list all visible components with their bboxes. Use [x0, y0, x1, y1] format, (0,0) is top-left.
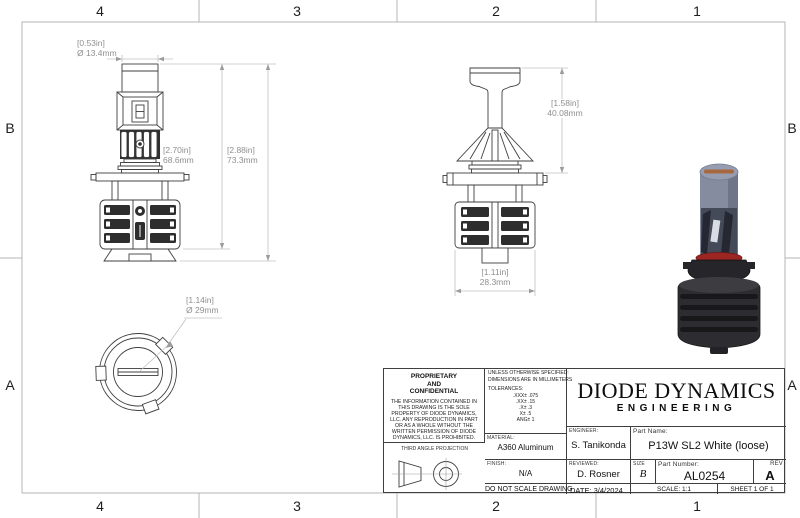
dim-base-diameter: [1.14in] Ø 29mm: [186, 296, 219, 315]
dim-tube-diameter-mm: Ø 13.4mm: [77, 49, 117, 59]
zone-label-top-4: 4: [92, 3, 108, 19]
zone-label-bottom-1: 1: [689, 498, 705, 514]
dim-upper-section-height: [1.58in] 40.08mm: [542, 99, 588, 118]
reviewed-cell: REVIEWED: D. Rosner: [567, 459, 631, 483]
engineer-value: S. Tanikonda: [567, 440, 630, 451]
zone-label-left-a: A: [2, 377, 18, 393]
zone-label-bottom-3: 3: [289, 498, 305, 514]
do-not-scale-label: DO NOT SCALE DRAWING: [485, 486, 566, 493]
spec-note-1: UNLESS OTHERWISE SPECIFIED:: [485, 369, 566, 377]
zone-label-bottom-4: 4: [92, 498, 108, 514]
material-value: A360 Aluminum: [485, 443, 566, 452]
rev-label: REV: [770, 461, 783, 467]
proprietary-title-line3: CONFIDENTIAL: [384, 388, 484, 396]
reviewed-label: REVIEWED:: [569, 461, 599, 467]
date-label: DATE:: [570, 486, 592, 495]
date-value: 3/4/2024: [594, 486, 623, 495]
proprietary-notice: PROPRIETARY AND CONFIDENTIAL THE INFORMA…: [384, 369, 485, 443]
scale-value: SCALE: 1:1: [631, 486, 717, 493]
zone-label-bottom-2: 2: [488, 498, 504, 514]
do-not-scale-cell: DO NOT SCALE DRAWING: [485, 483, 567, 494]
title-block: PROPRIETARY AND CONFIDENTIAL THE INFORMA…: [383, 368, 785, 493]
dim-body-height: [2.70in] 68.6mm: [163, 146, 194, 165]
finish-cell: FINISH: N/A: [485, 459, 567, 483]
material-cell: MATERIAL: A360 Aluminum: [485, 433, 567, 459]
proprietary-body: THE INFORMATION CONTAINED IN THIS DRAWIN…: [384, 399, 484, 441]
material-label: MATERIAL:: [487, 435, 515, 441]
engineering-drawing-sheet: { "sheet": { "zone_cols": ["4", "3", "2"…: [0, 0, 800, 518]
proprietary-title-line2: AND: [384, 381, 484, 389]
part-name-value: P13W SL2 White (loose): [631, 440, 786, 452]
zone-label-right-b: B: [784, 120, 800, 136]
part-number-label: Part Number:: [658, 461, 699, 468]
zone-label-top-2: 2: [488, 3, 504, 19]
dim-base-diameter-mm: Ø 29mm: [186, 306, 219, 316]
proprietary-title-line1: PROPRIETARY: [384, 373, 484, 381]
zone-label-right-a: A: [784, 377, 800, 393]
rev-cell: REV A: [754, 459, 786, 483]
finish-value: N/A: [485, 469, 566, 478]
bottom-view: [96, 318, 222, 414]
tolerances-label: TOLERANCES:: [485, 383, 566, 393]
engineer-label: ENGINEER:: [569, 428, 598, 434]
third-angle-projection-cell: THIRD ANGLE PROJECTION: [384, 443, 485, 494]
reviewed-value: D. Rosner: [567, 469, 630, 480]
part-number-value: AL0254: [656, 469, 753, 483]
size-value: B: [631, 468, 655, 480]
engineer-cell: ENGINEER: S. Tanikonda: [567, 426, 631, 459]
company-logo-subtitle: ENGINEERING: [567, 403, 786, 414]
date-cell: DATE: 3/4/2024: [567, 483, 631, 494]
iso-view: [678, 164, 760, 354]
part-number-cell: Part Number: AL0254: [656, 459, 754, 483]
finish-label: FINISH:: [487, 461, 506, 467]
dim-overall-height-mm: 73.3mm: [227, 156, 258, 166]
size-label: SIZE: [633, 461, 645, 467]
dim-tube-diameter: [0.53in] Ø 13.4mm: [77, 39, 117, 58]
side-view: [443, 68, 547, 263]
scale-cell: SCALE: 1:1: [631, 483, 718, 494]
part-name-cell: Part Name: P13W SL2 White (loose): [631, 426, 786, 459]
zone-label-top-3: 3: [289, 3, 305, 19]
size-cell: SIZE B: [631, 459, 656, 483]
tolerances-cell: UNLESS OTHERWISE SPECIFIED: DIMENSIONS A…: [485, 369, 567, 433]
sheet-cell: SHEET 1 OF 1: [718, 483, 786, 494]
zone-label-top-1: 1: [689, 3, 705, 19]
dim-heatsink-width-mm: 28.3mm: [463, 278, 527, 288]
rev-value: A: [754, 468, 786, 483]
tolerance-angle: ANG± 1: [485, 417, 566, 423]
company-logo: DIODE DYNAMICS ENGINEERING: [567, 369, 786, 426]
zone-label-left-b: B: [2, 120, 18, 136]
dim-heatsink-width: [1.11in] 28.3mm: [463, 268, 527, 287]
company-logo-name: DIODE DYNAMICS: [567, 381, 786, 401]
sheet-value: SHEET 1 OF 1: [718, 486, 786, 493]
spec-note-2: DIMENSIONS ARE IN MILLIMETERS: [485, 377, 566, 384]
dim-overall-height: [2.88in] 73.3mm: [227, 146, 258, 165]
dim-body-height-mm: 68.6mm: [163, 156, 194, 166]
part-name-label: Part Name:: [633, 428, 668, 435]
dim-upper-section-height-mm: 40.08mm: [542, 109, 588, 119]
third-angle-projection-label: THIRD ANGLE PROJECTION: [384, 446, 485, 452]
